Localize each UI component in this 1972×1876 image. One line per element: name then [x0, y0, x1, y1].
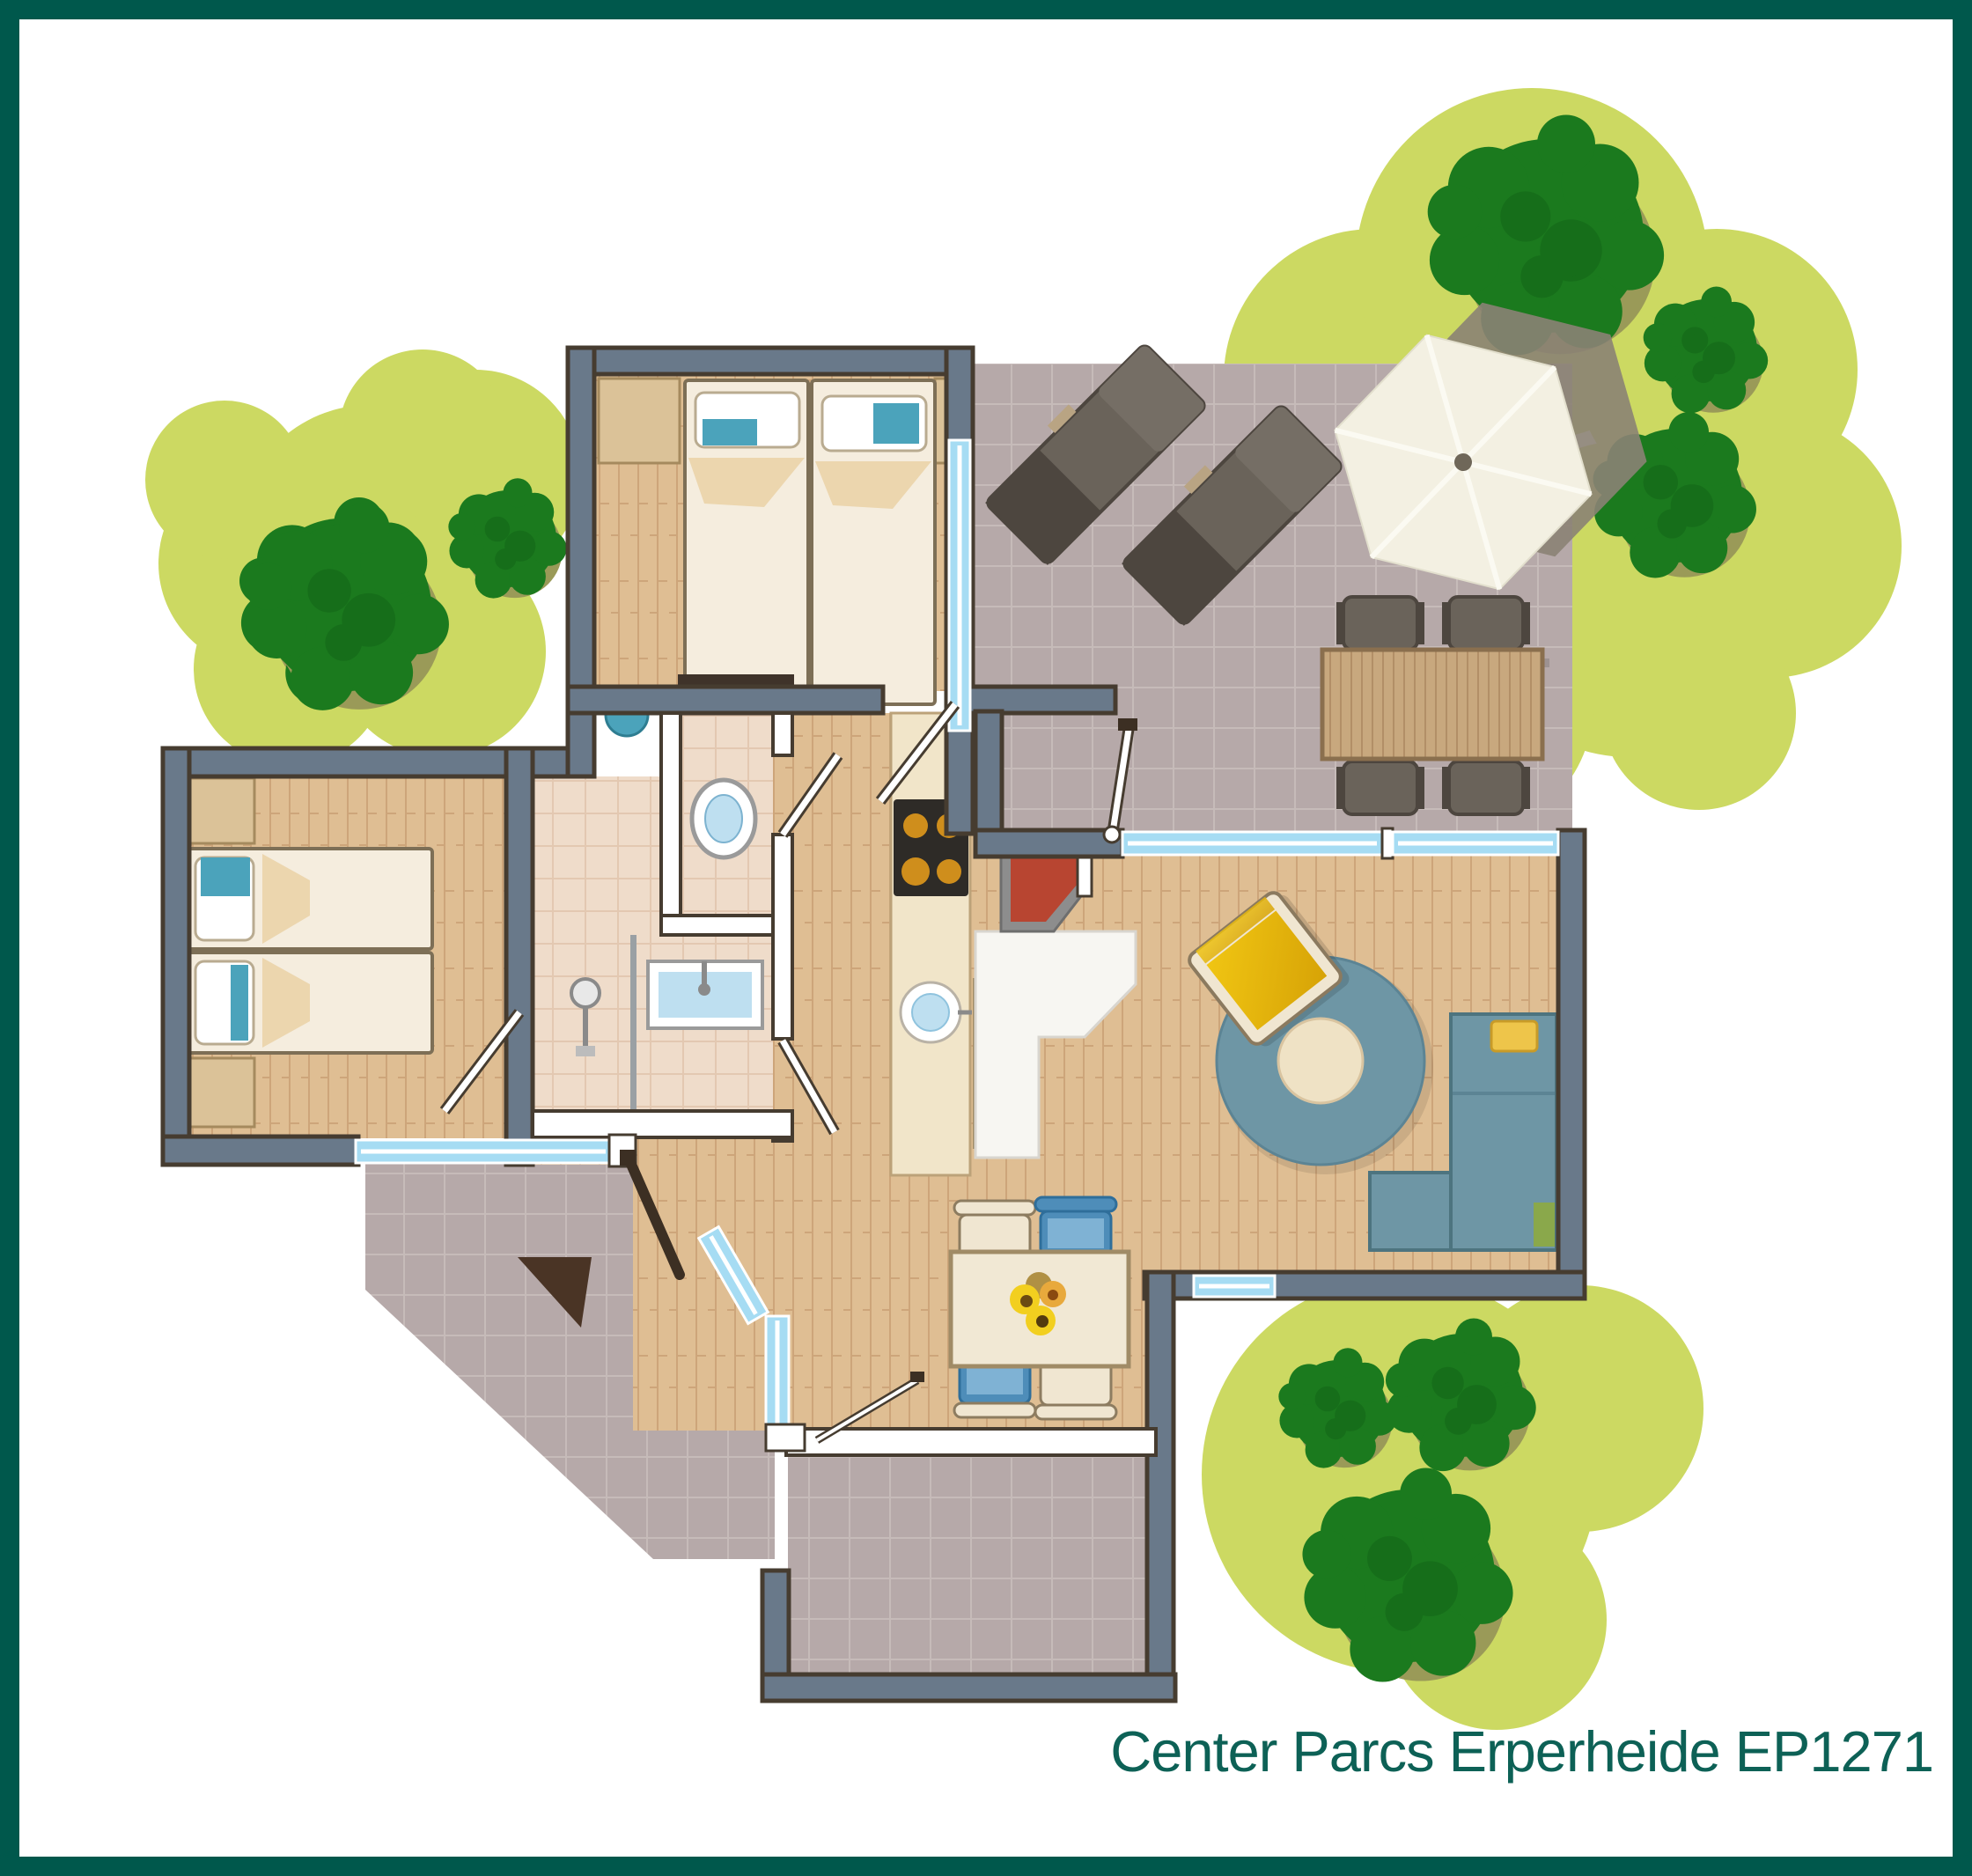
nightstand	[188, 778, 254, 843]
partition-wall	[773, 835, 792, 1039]
door-jamb	[766, 1424, 805, 1451]
wall	[762, 1674, 1175, 1701]
wall	[946, 687, 1115, 713]
wall	[1147, 1272, 1174, 1701]
bottom-terrace	[788, 1453, 1155, 1674]
partition-wall	[661, 916, 773, 935]
outdoor-chair-icon	[1442, 597, 1530, 650]
sofa-pillow	[1491, 1021, 1537, 1051]
partition-wall	[773, 713, 792, 755]
wall	[568, 687, 883, 713]
partition-wall	[661, 713, 681, 935]
floor-plan-canvas	[0, 0, 1972, 1876]
outdoor-chair-icon	[1336, 597, 1424, 650]
wall	[568, 348, 973, 374]
sliding-door-wall	[786, 1429, 1156, 1455]
wall	[975, 830, 1122, 857]
dining-set	[951, 1197, 1129, 1419]
partition-wall	[533, 1111, 792, 1137]
outdoor-chair-icon	[1442, 761, 1530, 814]
wall	[1558, 830, 1585, 1298]
plan-caption: Center Parcs Erperheide EP1271	[0, 1718, 1933, 1784]
shower-icon	[571, 979, 600, 1007]
wall	[163, 748, 189, 1165]
floor-plan-page: Center Parcs Erperheide EP1271	[0, 0, 1972, 1876]
outdoor-table	[1322, 650, 1542, 759]
dining-chair-cream	[1035, 1361, 1116, 1419]
dining-chair-blue	[1035, 1197, 1116, 1255]
nightstand	[188, 1058, 254, 1127]
wall	[163, 1137, 358, 1165]
wall	[506, 748, 533, 1165]
sofa-pillow	[1534, 1203, 1555, 1247]
outdoor-chair-icon	[1336, 761, 1424, 814]
nightstand	[599, 379, 680, 463]
coffee-table	[1278, 1019, 1363, 1103]
shower-partition	[630, 935, 636, 1114]
